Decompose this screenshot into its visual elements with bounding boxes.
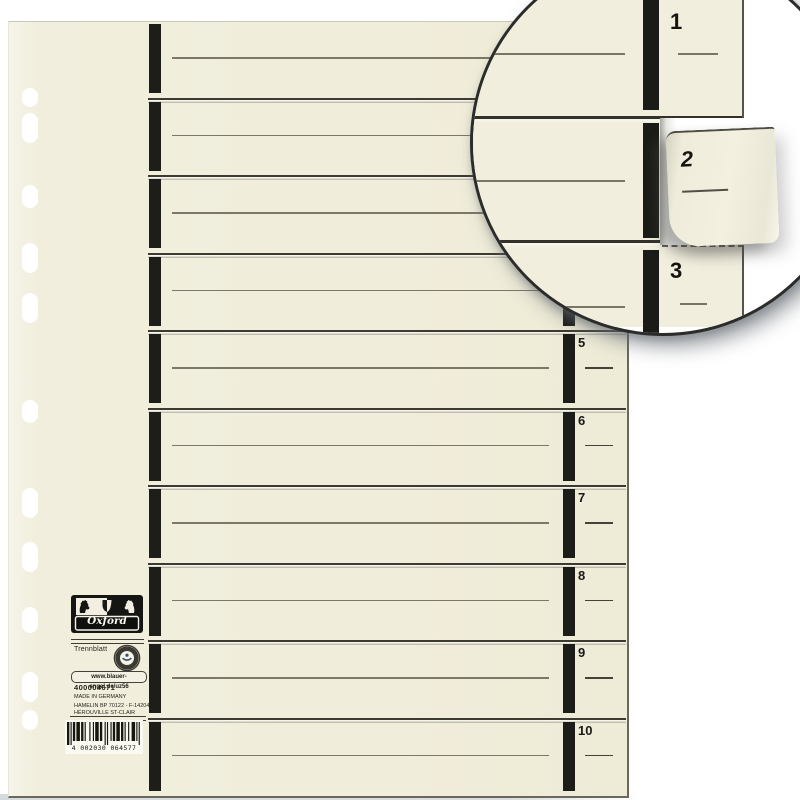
writing-line [473,306,625,308]
tab-mark-left [149,489,161,558]
writing-line [172,367,549,369]
section-divider [148,563,626,565]
tab-mark [643,250,659,335]
writing-line [172,677,549,679]
punch-hole [22,185,38,208]
tab-mark-left [149,644,161,713]
tab-number: 2 [680,148,693,171]
punch-hole [22,488,38,518]
tab-number: 10 [578,724,592,738]
tab-mark-left [149,257,161,326]
punch-hole [22,607,38,633]
punch-hole [22,672,38,702]
punch-hole [22,88,38,107]
tab-line [682,189,728,193]
tab-line [585,445,613,447]
sheet-edge [742,0,744,118]
punch-hole [22,113,38,143]
punch-hole [22,400,38,423]
punch-hole [22,542,38,572]
tab-mark-right [563,334,575,403]
oxford-brand-text: Oxford [75,615,139,627]
tab-mark-right [563,567,575,636]
punch-hole [22,243,38,273]
tab-mark-right [563,412,575,481]
tab-number: 8 [578,569,585,583]
product-photo: 12345678910 Oxford Trennblatt www.blauer… [0,0,800,800]
writing-line [473,53,625,55]
tab-mark-right [563,644,575,713]
tab-mark-left [149,412,161,481]
tab-mark-left [149,722,161,791]
tab-line [585,522,613,524]
tab-number: 7 [578,491,585,505]
section-divider [148,640,626,642]
tab-line [585,367,613,369]
barcode-digits: 4 002030 064577 [65,744,143,752]
made-in-text: MADE IN GERMANY [74,694,126,700]
writing-line [473,180,625,182]
sheet-edge [742,246,744,333]
tab-line [678,53,718,55]
tab-number: 6 [578,414,585,428]
tab-number: 5 [578,336,585,350]
tab-mark-right [563,489,575,558]
article-number: 400004671 [74,683,115,692]
writing-line [172,600,549,602]
barcode: 4 002030 064577 [65,720,143,754]
eco-label-box: www.blauer-engel.de/uz56 [71,671,147,683]
product-name: Trennblatt [74,646,107,653]
tab-line [585,677,613,679]
tab-line [680,303,707,305]
manufacturer-address-line1: HAMELIN BP 70122 - F-14204 [74,703,149,709]
section-divider [148,408,626,410]
tab-line [585,755,613,757]
tab-mark-left [149,567,161,636]
tab-mark-left [149,334,161,403]
section-divider [148,485,626,487]
blauer-engel-icon [113,644,141,672]
barcode-bars [67,722,141,745]
tab-number: 1 [670,11,682,33]
writing-line [172,522,549,524]
section-divider [148,718,626,720]
oxford-crest-icon [71,595,143,633]
tab-mark [643,0,659,110]
tab-number: 9 [578,646,585,660]
writing-line [172,755,549,757]
section-divider [148,330,626,332]
writing-line [172,445,549,447]
section-divider [473,240,661,243]
tab-mark-left [149,24,161,93]
tab-line [585,600,613,602]
tab-mark-left [149,179,161,248]
magnifier-inset: 1 3 2 [470,0,800,336]
tab-mark [643,123,659,238]
punch-hole [22,710,38,730]
tab-mark-right [563,722,575,791]
oxford-logo: Oxford [71,595,143,633]
tab-mark-left [149,102,161,171]
torn-tab-flap: 2 [666,127,780,248]
tab-number: 3 [670,260,682,282]
punch-hole [22,293,38,323]
